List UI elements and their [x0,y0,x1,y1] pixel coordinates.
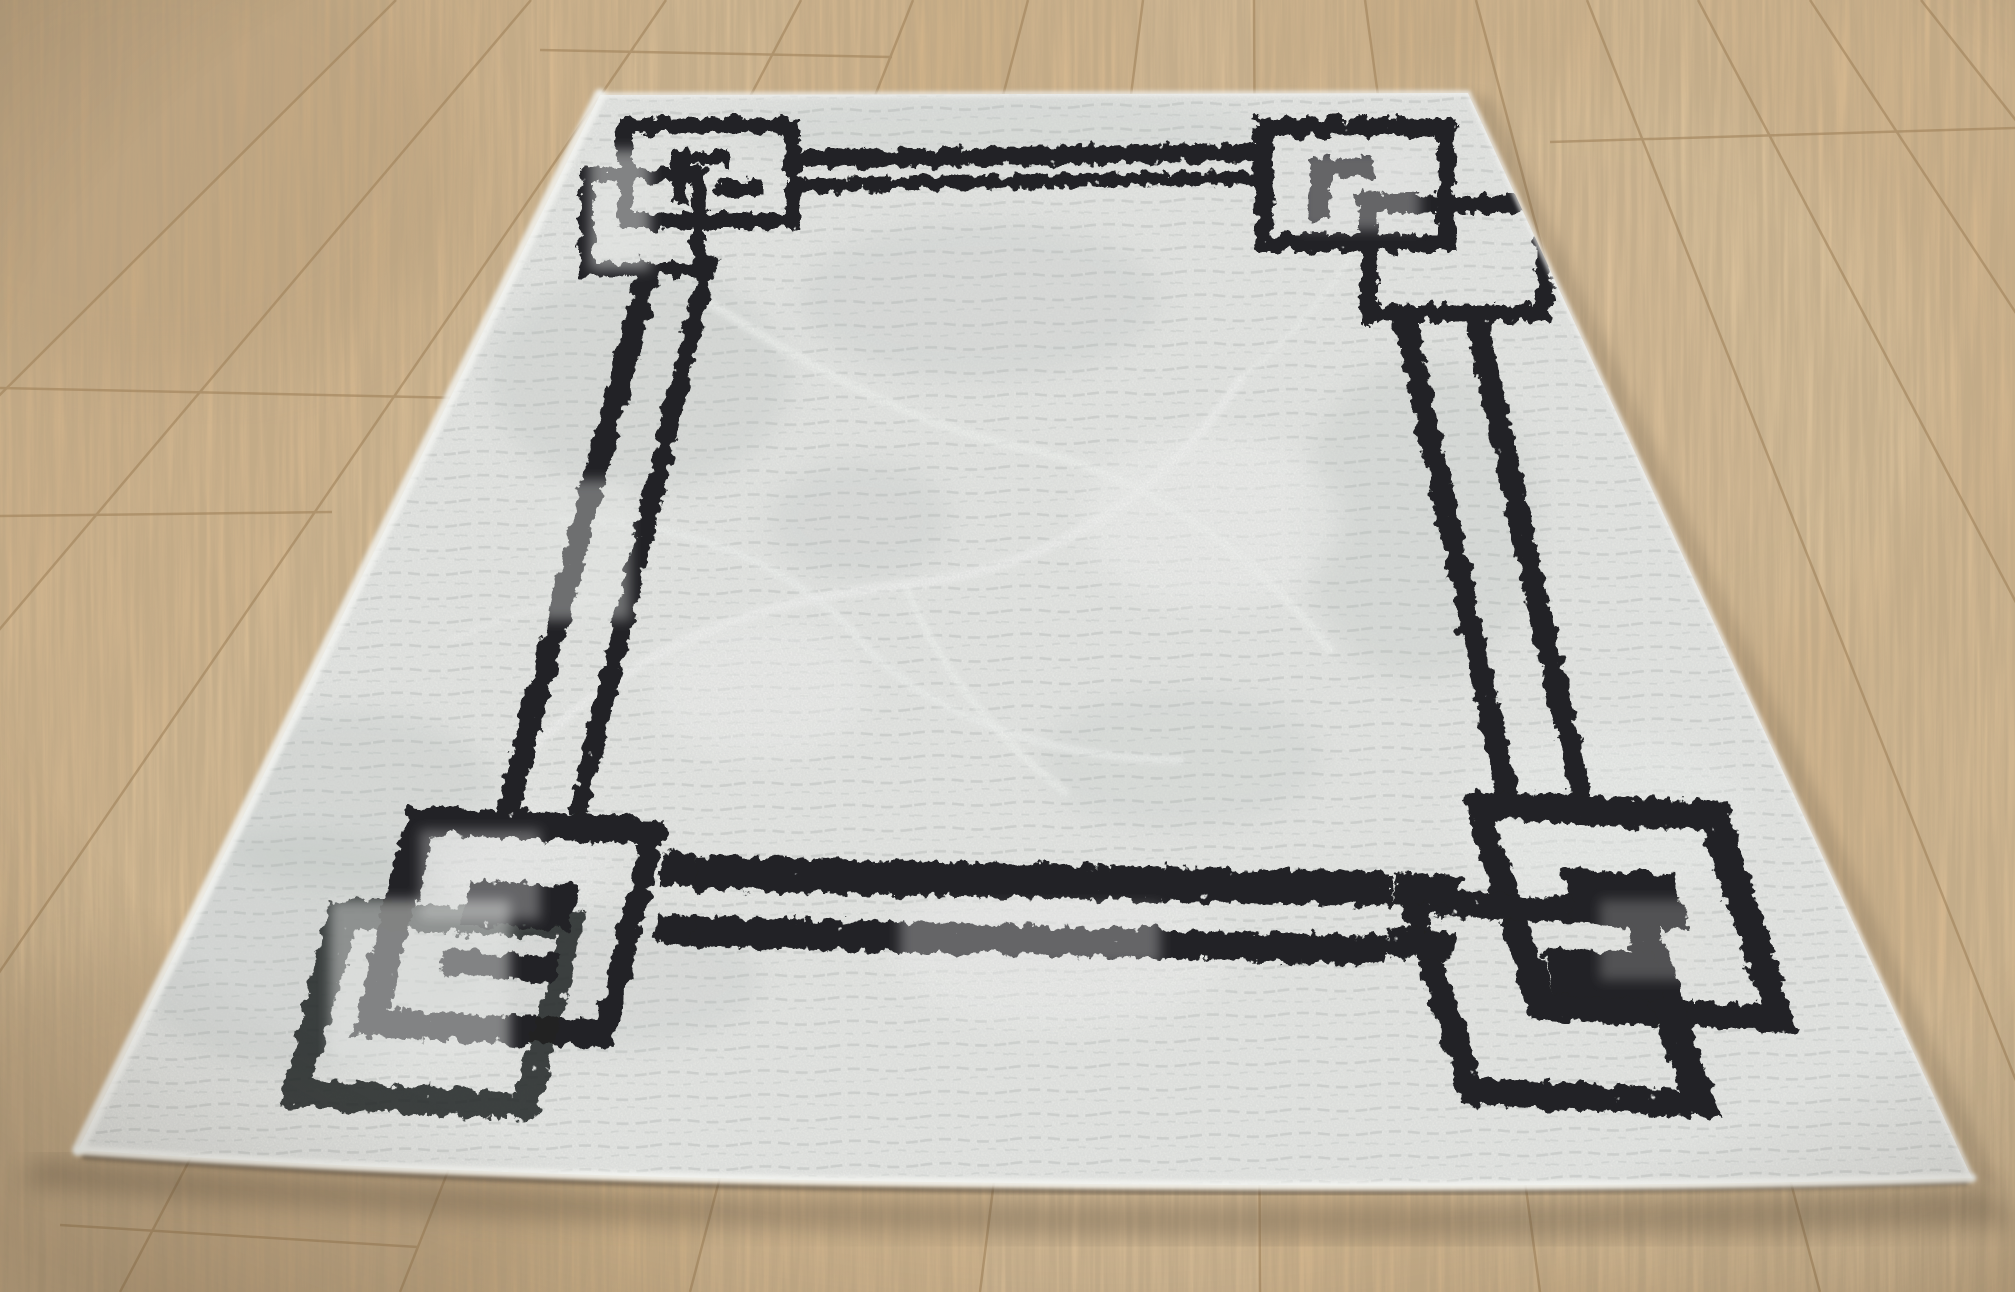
photo-stage [0,0,2015,1292]
scene-photo [0,0,2015,1292]
photo-vignette [0,0,2015,1292]
